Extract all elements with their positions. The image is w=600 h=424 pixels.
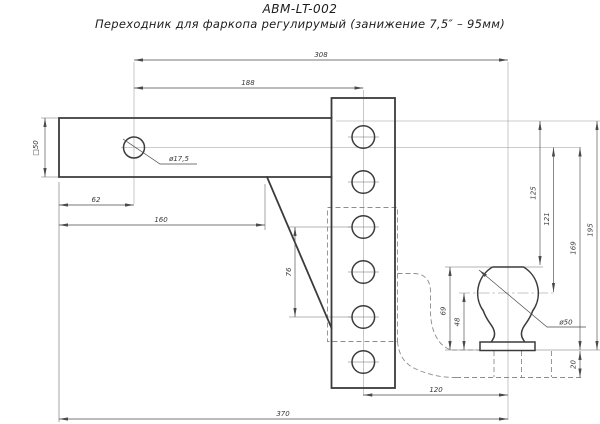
hidden-ball-bracket <box>328 208 584 378</box>
dim-ball-dia-label: ø50 <box>558 319 573 327</box>
dim-120-label: 120 <box>429 386 443 394</box>
centerlines <box>121 62 600 420</box>
dim-20-label: 20 <box>570 360 578 369</box>
dim-69-label: 69 <box>440 306 448 315</box>
dim-169-label: 169 <box>570 241 578 255</box>
dim-hole-dia-label: ø17,5 <box>168 155 189 163</box>
dim-160-label: 160 <box>154 216 168 224</box>
dim-195-label: 195 <box>587 223 595 237</box>
dimension-labels: 308 188 62 160 370 120 □50 76 125 121 16… <box>32 51 595 418</box>
dim-48-label: 48 <box>454 317 462 326</box>
support-brace <box>267 177 332 328</box>
dim-76-label: 76 <box>285 267 293 276</box>
dimension-lines <box>45 60 597 419</box>
technical-drawing: 308 188 62 160 370 120 □50 76 125 121 16… <box>0 0 600 424</box>
dim-308-label: 308 <box>314 51 328 59</box>
ball-flange <box>480 342 535 351</box>
extension-lines <box>41 118 600 422</box>
dim-188-label: 188 <box>241 79 255 87</box>
dim-62-label: 62 <box>92 196 101 204</box>
dim-121-label: 121 <box>543 212 551 225</box>
dim-square50-label: □50 <box>32 140 40 156</box>
drawing-page: ABM-LT-002 Переходник для фаркопа регули… <box>0 0 600 424</box>
dim-125-label: 125 <box>530 186 538 200</box>
dim-370-label: 370 <box>276 410 290 418</box>
